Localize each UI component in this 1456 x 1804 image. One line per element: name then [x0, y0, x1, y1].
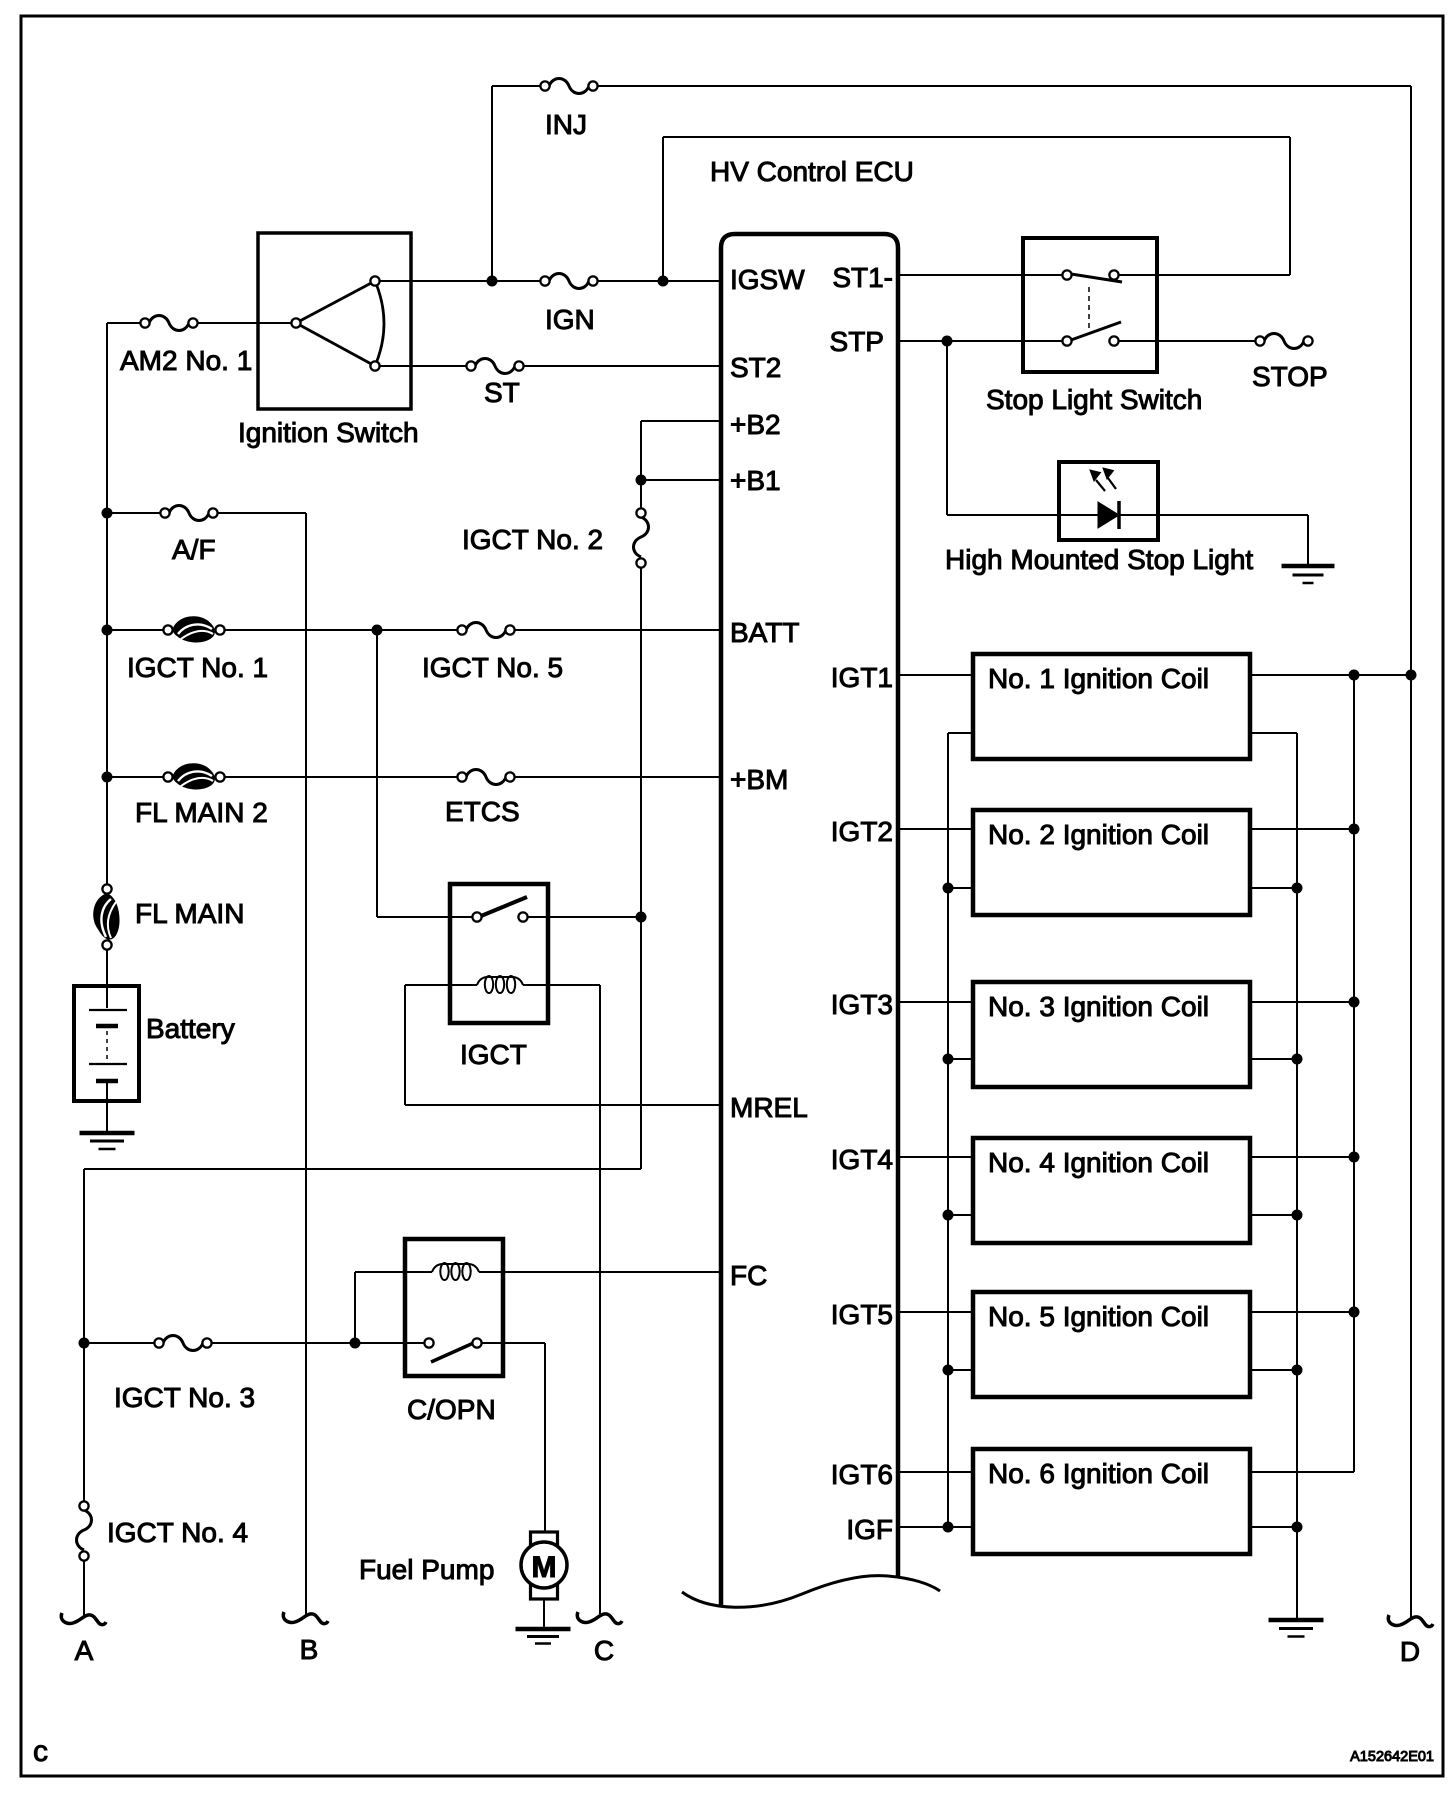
svg-text:IGT4: IGT4: [831, 1144, 893, 1175]
svg-text:IGCT No. 3: IGCT No. 3: [114, 1382, 255, 1413]
svg-text:FL MAIN: FL MAIN: [135, 898, 244, 929]
svg-text:Battery: Battery: [146, 1013, 235, 1044]
svg-text:IGSW: IGSW: [730, 264, 805, 295]
svg-text:IGN: IGN: [545, 304, 595, 335]
svg-text:IGT2: IGT2: [831, 816, 893, 847]
svg-text:ETCS: ETCS: [445, 796, 520, 827]
svg-text:ST: ST: [484, 377, 520, 408]
svg-text:D: D: [1400, 1636, 1420, 1667]
svg-text:IGCT No. 2: IGCT No. 2: [462, 524, 603, 555]
svg-text:No. 4 Ignition Coil: No. 4 Ignition Coil: [988, 1147, 1209, 1178]
svg-text:IGCT No. 5: IGCT No. 5: [422, 652, 563, 683]
svg-text:Ignition Switch: Ignition Switch: [238, 417, 419, 448]
svg-text:+B1: +B1: [730, 465, 781, 496]
svg-text:C/OPN: C/OPN: [407, 1394, 496, 1425]
svg-text:B: B: [300, 1634, 319, 1665]
svg-text:IGT3: IGT3: [831, 989, 893, 1020]
svg-text:IGF: IGF: [846, 1514, 893, 1545]
svg-text:A152642E01: A152642E01: [1350, 1749, 1434, 1765]
svg-text:No. 1 Ignition Coil: No. 1 Ignition Coil: [988, 663, 1209, 694]
svg-text:INJ: INJ: [545, 109, 587, 140]
svg-text:IGT5: IGT5: [831, 1299, 893, 1330]
svg-text:A: A: [75, 1635, 94, 1666]
svg-text:FL MAIN 2: FL MAIN 2: [135, 797, 268, 828]
svg-text:MREL: MREL: [730, 1092, 808, 1123]
svg-text:IGCT No. 1: IGCT No. 1: [127, 652, 268, 683]
svg-text:High Mounted Stop Light: High Mounted Stop Light: [945, 544, 1253, 575]
svg-text:IGT6: IGT6: [831, 1459, 893, 1490]
svg-text:BATT: BATT: [730, 617, 799, 648]
svg-text:IGT1: IGT1: [831, 662, 893, 693]
svg-text:STOP: STOP: [1252, 361, 1328, 392]
svg-text:FC: FC: [730, 1260, 767, 1291]
svg-text:AM2 No. 1: AM2 No. 1: [120, 345, 252, 376]
svg-text:No. 5 Ignition Coil: No. 5 Ignition Coil: [988, 1301, 1209, 1332]
svg-text:M: M: [532, 1551, 557, 1584]
svg-text:No. 2 Ignition Coil: No. 2 Ignition Coil: [988, 819, 1209, 850]
svg-text:A/F: A/F: [172, 534, 216, 565]
svg-text:C: C: [594, 1635, 614, 1666]
svg-text:ST1-: ST1-: [832, 262, 893, 293]
svg-text:Fuel Pump: Fuel Pump: [359, 1554, 494, 1585]
svg-text:IGCT No. 4: IGCT No. 4: [107, 1517, 248, 1548]
svg-text:Stop Light Switch: Stop Light Switch: [986, 384, 1202, 415]
svg-text:STP: STP: [830, 326, 884, 357]
svg-text:ST2: ST2: [730, 352, 781, 383]
svg-text:+BM: +BM: [730, 764, 788, 795]
svg-text:No. 3 Ignition Coil: No. 3 Ignition Coil: [988, 991, 1209, 1022]
svg-text:No. 6 Ignition Coil: No. 6 Ignition Coil: [988, 1458, 1209, 1489]
svg-text:HV Control ECU: HV Control ECU: [710, 156, 914, 187]
svg-text:IGCT: IGCT: [460, 1039, 527, 1070]
svg-text:+B2: +B2: [730, 409, 781, 440]
svg-text:c: c: [33, 1735, 48, 1768]
